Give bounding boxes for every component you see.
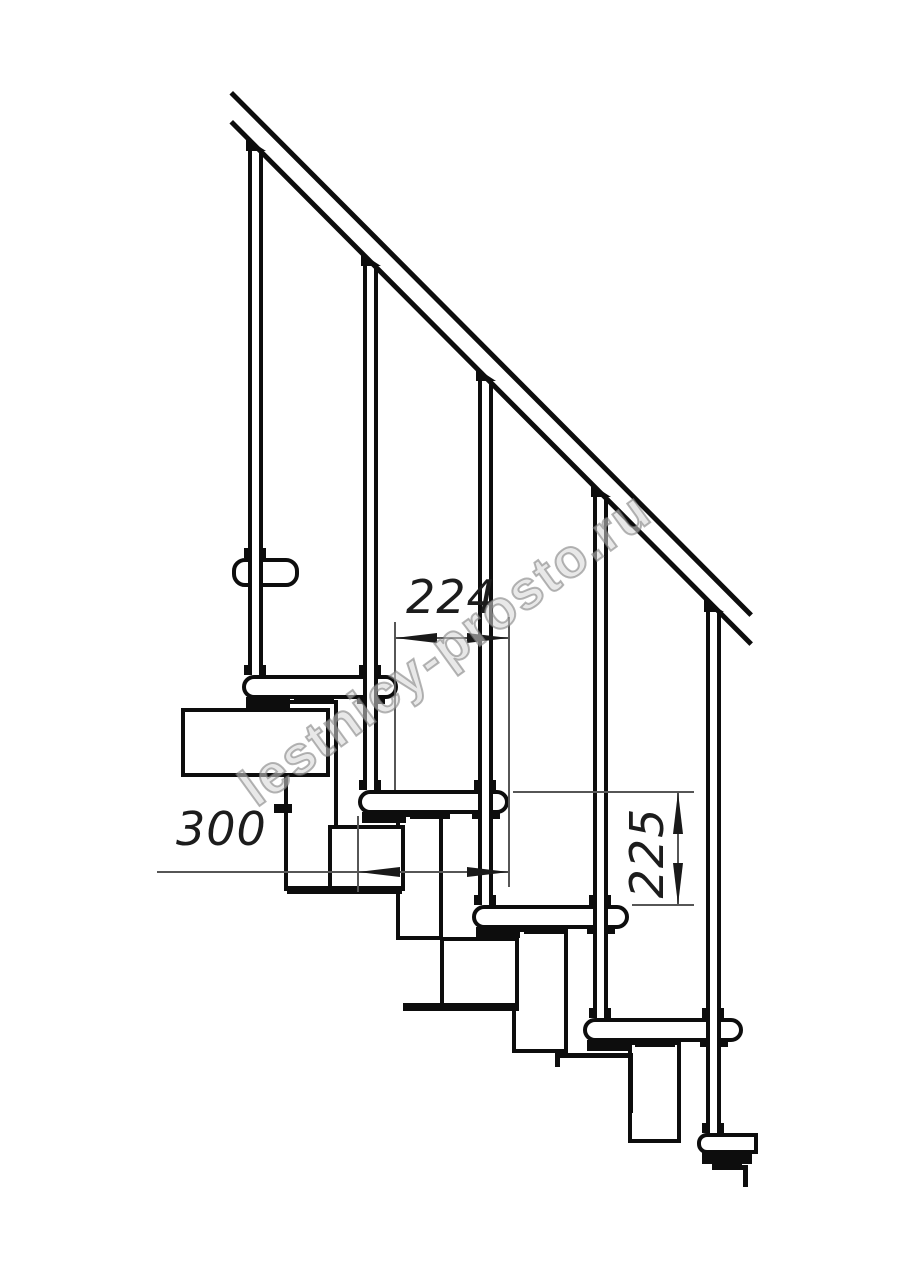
stringer-link-plate [628, 1041, 681, 1143]
arrow-right-icon [467, 633, 509, 643]
stringer-link-plate [512, 928, 568, 1053]
arrow-up-icon [673, 792, 683, 834]
tread-foot [712, 1164, 742, 1170]
upper-flight-step-end [232, 558, 299, 587]
tread-foot [410, 812, 450, 819]
tread-foot [587, 1040, 631, 1051]
module-fitting [274, 804, 292, 813]
dimension-label-225: 225 [624, 807, 670, 899]
staircase-technical-drawing: 224 300 225 lestnicy-prosto.ru [0, 0, 914, 1280]
extension-line [513, 791, 694, 793]
dimension-label-300: 300 [176, 806, 267, 852]
extension-line [394, 622, 396, 790]
stringer-module-edge [555, 1053, 632, 1058]
tread-foot [524, 927, 564, 934]
dimension-line-300 [157, 871, 509, 873]
tread-foot [476, 927, 520, 938]
dimension-label-224: 224 [406, 574, 497, 620]
tread-foot [702, 1152, 752, 1164]
stringer-module [440, 937, 519, 1007]
tread-foot [294, 697, 334, 704]
arrow-right-icon [467, 867, 509, 877]
module-base-bar [287, 886, 402, 894]
baluster [593, 496, 608, 1018]
stringer-module [328, 825, 405, 891]
stringer-module-edge [555, 1053, 560, 1067]
tread-foot [362, 812, 406, 823]
baluster [248, 150, 263, 675]
stringer-module-edge [743, 1165, 748, 1187]
tread-partial [697, 1133, 758, 1154]
arrow-left-icon [358, 867, 400, 877]
arrow-left-icon [395, 633, 437, 643]
baluster [706, 611, 721, 1133]
extension-line [632, 904, 694, 906]
tread-foot [246, 697, 290, 708]
extension-line [357, 816, 359, 892]
module-base-bar [403, 1003, 519, 1011]
baluster [478, 380, 493, 905]
stringer-module-edge [628, 1053, 633, 1113]
extension-line [508, 617, 510, 887]
tread-foot [635, 1040, 675, 1047]
stringer-module [181, 708, 330, 777]
baluster [363, 265, 378, 790]
arrow-down-icon [673, 863, 683, 905]
